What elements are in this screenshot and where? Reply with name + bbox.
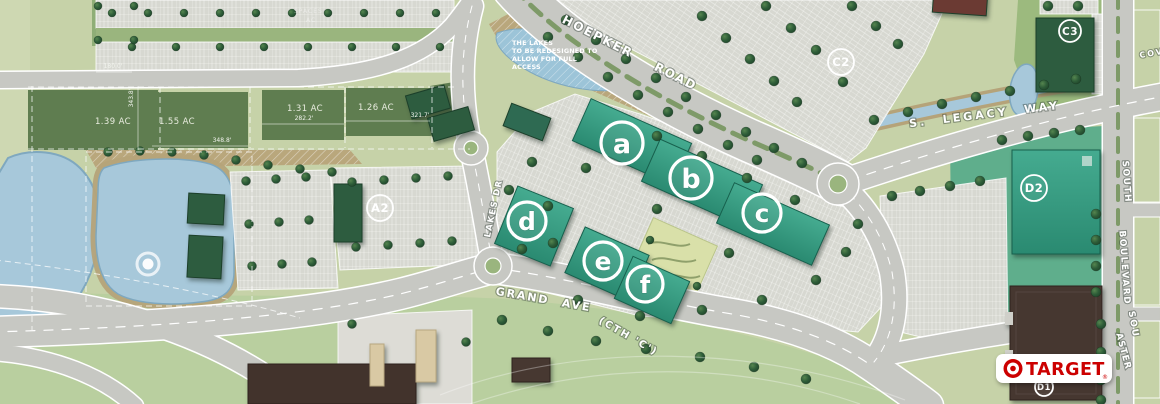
fountain-pond [96,159,234,304]
svg-text:THE LAKES: THE LAKES [512,39,553,47]
dim-321: 321.7' [411,112,430,119]
building-south-pad [512,358,550,382]
marker-lot-c2: C2 [828,49,854,75]
svg-text:C3: C3 [1062,26,1078,38]
svg-text:C2: C2 [832,55,849,69]
svg-text:TO BE REDESIGNED TO: TO BE REDESIGNED TO [512,47,598,55]
marker-building-b: b [670,157,712,199]
svg-text:SPACES: SPACES [294,8,323,15]
svg-text:A2: A2 [371,201,389,215]
dim-348: 348.8' [213,137,232,144]
roundabout-grand [474,247,512,285]
marker-lot-c3: C3 [1059,20,1081,42]
target-bullseye-icon [1004,359,1023,378]
marker-lot-a2: A2 [367,195,393,221]
svg-text:e: e [595,247,612,276]
marker-building-f: f [627,266,663,302]
parcel-label-131: 1.31 AC [287,104,323,114]
roundabout-hoepker-legacy [817,163,859,205]
target-wordmark: TARGET [1026,360,1105,380]
parcel-label-126: 1.26 AC [358,103,394,113]
marker-building-c: c [743,194,781,232]
roundabout-lakes-north [454,131,488,165]
svg-text:d: d [518,207,536,236]
marker-building-a: a [601,122,643,164]
target-badge: TARGET ® [996,354,1112,383]
west-lot [230,170,338,290]
parcel-label-139: 1.39 AC [95,117,131,127]
site-plan-map: HOEPKER ROAD S. LEGACY WAY GRAND AVE (CT… [0,0,1160,404]
svg-text:a: a [613,129,631,160]
marker-lot-d2: D2 [1021,175,1047,201]
svg-text:b: b [681,164,700,195]
parcel-label-155: 1.55 AC [159,117,195,127]
dim-343: 343.8' [128,88,135,107]
svg-text:c: c [755,199,770,228]
target-registered-mark: ® [1102,374,1108,381]
svg-text:ALLOW FOR FULL: ALLOW FOR FULL [512,55,577,63]
site-plan-canvas: HOEPKER ROAD S. LEGACY WAY GRAND AVE (CT… [0,0,1160,404]
northwest-lot-island [96,28,454,42]
svg-text:ACCESS: ACCESS [512,63,541,71]
svg-text:D2: D2 [1025,181,1044,195]
dim-180: 180.0' [104,63,123,70]
marker-building-e: e [584,242,622,280]
svg-text:AC: AC [306,17,316,24]
svg-text:D1: D1 [1037,383,1051,393]
marker-building-d: d [508,202,546,240]
svg-text:f: f [640,271,651,299]
dim-282: 282.2' [295,115,314,122]
